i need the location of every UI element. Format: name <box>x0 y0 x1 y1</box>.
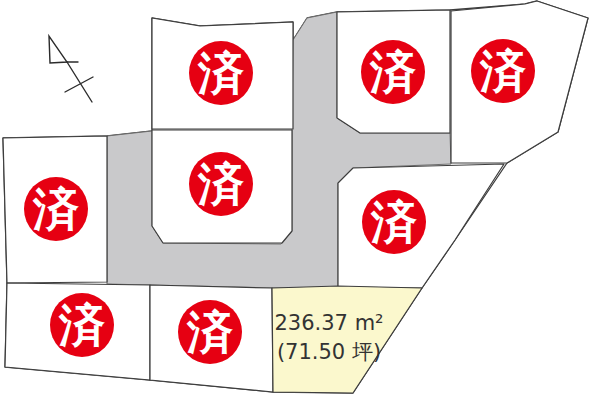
sold-badge-label-middle-right: 済 <box>370 195 417 249</box>
sold-badge-label-bottom-middle: 済 <box>186 305 233 359</box>
sold-badge-label-left: 済 <box>32 182 79 236</box>
land-subdivision-map: 済済済済済済済済236.37 m²(71.50 坪) <box>0 0 600 404</box>
sold-badge-label-top-middle: 済 <box>197 46 244 100</box>
sold-badge-label-top-right-1: 済 <box>369 45 416 99</box>
north-arrow-line-2 <box>65 77 93 92</box>
available-lot-area-sqm: 236.37 m² <box>274 311 383 335</box>
sold-badge-label-top-right-2: 済 <box>479 44 526 98</box>
north-arrow-icon <box>49 36 67 63</box>
north-arrow-line-1 <box>67 62 92 102</box>
available-lot-area-tsubo: (71.50 坪) <box>277 340 381 364</box>
sold-badge-label-bottom-left: 済 <box>58 298 105 352</box>
sold-badge-label-middle: 済 <box>197 157 244 211</box>
site-map-canvas: 済済済済済済済済236.37 m²(71.50 坪) <box>0 0 600 404</box>
